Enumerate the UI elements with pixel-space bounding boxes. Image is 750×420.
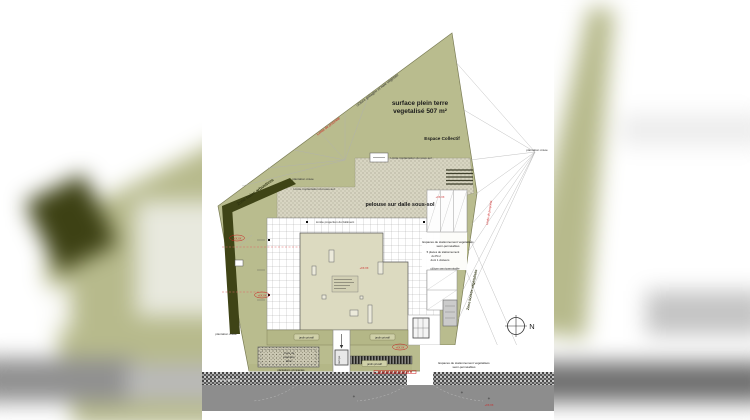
street-label: rue de plaisance xyxy=(216,378,240,382)
espace-collectif-label: Espace Collectif xyxy=(424,136,460,141)
ramp-corridor xyxy=(333,330,350,377)
north-label: N xyxy=(529,322,534,331)
courtyard xyxy=(408,315,440,345)
limite-projection-label: Limite projection du bâtiment xyxy=(316,220,355,224)
cuve-label-3: 20m³ xyxy=(286,359,293,363)
jardin-pill-label: jardin privatif xyxy=(298,335,314,339)
roof-note-block xyxy=(332,276,358,292)
parking-stalls-upper xyxy=(427,190,467,232)
elevation-label: +XX.XX xyxy=(258,294,267,297)
blur-road-fade xyxy=(126,364,214,400)
jardin-pill-label: jardin privatif xyxy=(374,335,390,339)
site-plan: +++ N surface plein terre vegetalisé 507… xyxy=(202,0,554,420)
jardin-pill-label: jardin privatif xyxy=(366,362,382,366)
plantation-creee-left: plantation créée xyxy=(292,177,314,181)
elevation-label: +XX.XX xyxy=(485,404,494,407)
site-plan-area: +++ N surface plein terre vegetalisé 507… xyxy=(202,0,554,420)
plantation-creee-bottom: plantation créée xyxy=(215,332,237,336)
limite-implantation-top: Limite implantation du sous-sol xyxy=(390,156,432,160)
blur-left-panel xyxy=(0,0,214,420)
rampe-label: rampe xyxy=(337,355,341,364)
pelouse-label: pelouse sur dalle sous-sol xyxy=(365,202,435,208)
plantation-creee-right: plantation créée xyxy=(526,148,548,152)
svg-text:+: + xyxy=(461,390,464,395)
blur-gray-band xyxy=(621,114,750,146)
elevation-label: +XX.XX xyxy=(233,237,242,240)
limite-implantation-left: Limite implantation du sous-sol xyxy=(293,187,335,191)
plu-label-3: dont 1 visiteurs xyxy=(431,258,450,262)
svg-text:+: + xyxy=(488,396,491,401)
stationnement-label-2b: semi-perméables xyxy=(452,365,476,369)
blur-right-panel xyxy=(540,0,750,420)
elevation-label: +XX.XX xyxy=(360,267,369,270)
surface-title-line2: vegetalisé 507 m² xyxy=(393,108,448,115)
grimpantes-label: plantations grimpantes xyxy=(277,368,305,372)
stationnement-label-1b: semi-perméables xyxy=(436,244,460,248)
blur-road-left xyxy=(0,358,136,402)
surface-title-line1: surface plein terre xyxy=(392,100,449,107)
driveway-gap xyxy=(407,372,433,385)
bike-shed xyxy=(443,300,457,326)
blur-road-right xyxy=(540,362,750,402)
screenshot-canvas: +++ N surface plein terre vegetalisé 507… xyxy=(0,0,750,420)
cloture-semi-label: clôture semi-perméable xyxy=(430,267,460,271)
blur-white-pocket xyxy=(0,286,71,331)
elevation-label: +XX.XX xyxy=(396,346,405,349)
road xyxy=(202,385,554,411)
blur-gray-blob xyxy=(646,291,750,335)
sidewalk xyxy=(202,372,554,385)
svg-text:+: + xyxy=(353,394,356,399)
elevation-label: +XX.XX xyxy=(436,196,445,199)
